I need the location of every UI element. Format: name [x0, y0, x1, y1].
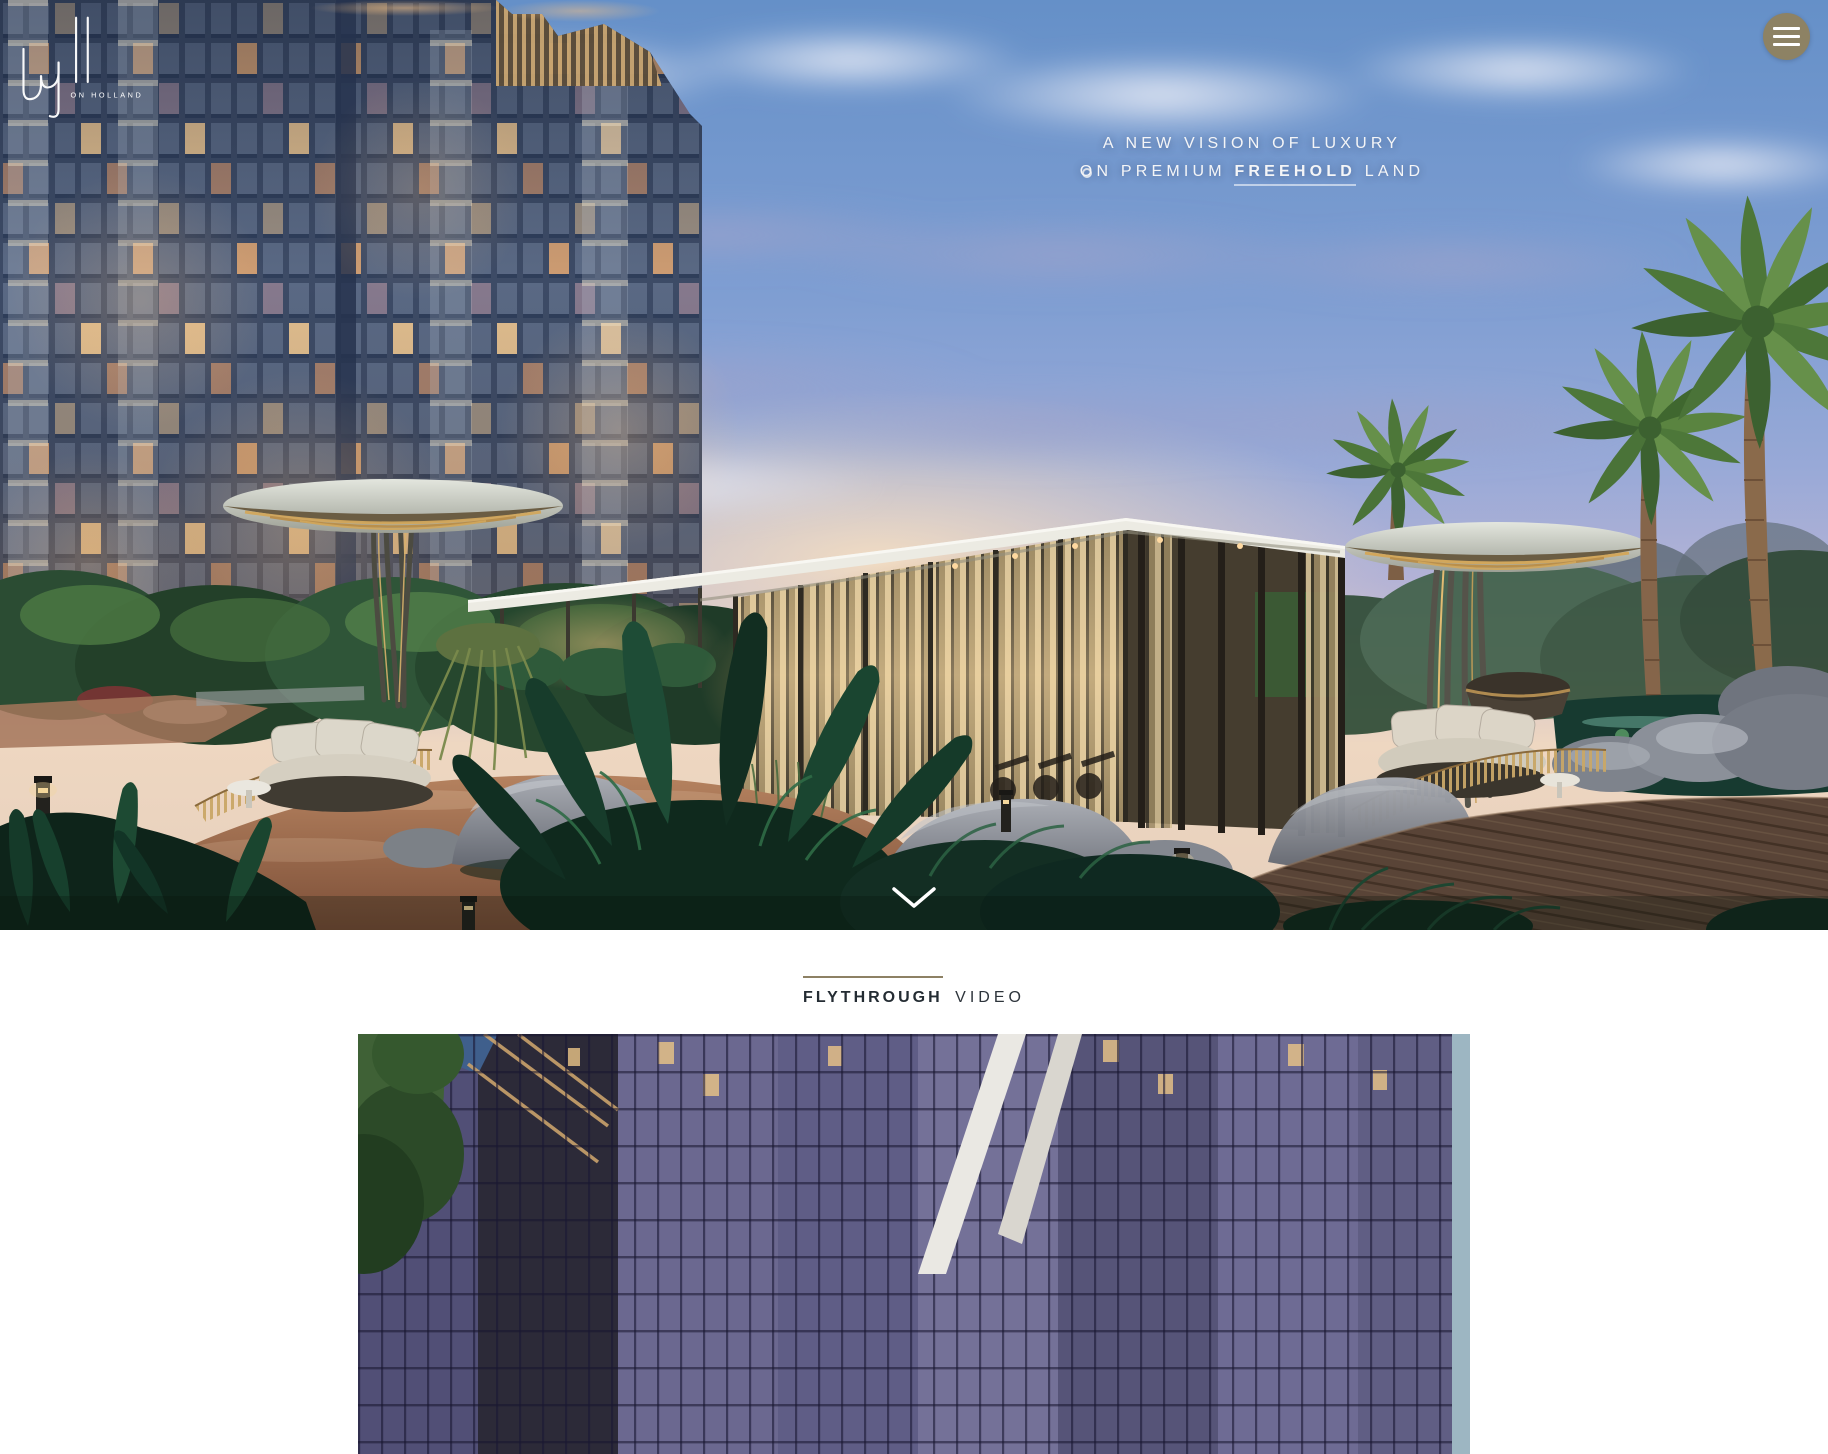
hero-headline: A NEW VISION OF LUXURY ON PREMIUM FREEHO…	[952, 130, 1552, 186]
menu-button[interactable]	[1763, 13, 1810, 60]
hyll-logo-mark: ON HOLLAND	[8, 8, 150, 120]
flythrough-section: FLYTHROUGH VIDEO	[0, 930, 1828, 1454]
section-title-bold: FLYTHROUGH	[803, 976, 943, 1007]
section-title: FLYTHROUGH VIDEO	[0, 976, 1828, 1007]
hero-image	[0, 0, 1828, 930]
flythrough-video-thumbnail[interactable]	[358, 1034, 1470, 1454]
brand-logo[interactable]: ON HOLLAND	[8, 8, 150, 120]
headline-line-1: A NEW VISION OF LUXURY	[952, 130, 1552, 158]
brand-tagline: ON HOLLAND	[71, 91, 144, 100]
hero-section: ON HOLLAND A NEW VISION OF LUXURY ON PRE…	[0, 0, 1828, 930]
headline-line-2-post: LAND	[1365, 163, 1424, 180]
page: ON HOLLAND A NEW VISION OF LUXURY ON PRE…	[0, 0, 1828, 1454]
section-title-regular: VIDEO	[955, 989, 1025, 1006]
headline-line-2-pre: ON PREMIUM	[1080, 163, 1226, 180]
chevron-down-icon	[890, 885, 938, 911]
video-thumbnail-image	[358, 1034, 1470, 1454]
headline-line-2: ON PREMIUM FREEHOLD LAND	[952, 158, 1552, 186]
headline-line-2-emphasis: FREEHOLD	[1234, 163, 1356, 186]
hamburger-icon	[1773, 27, 1800, 46]
scroll-down-button[interactable]	[886, 881, 942, 918]
